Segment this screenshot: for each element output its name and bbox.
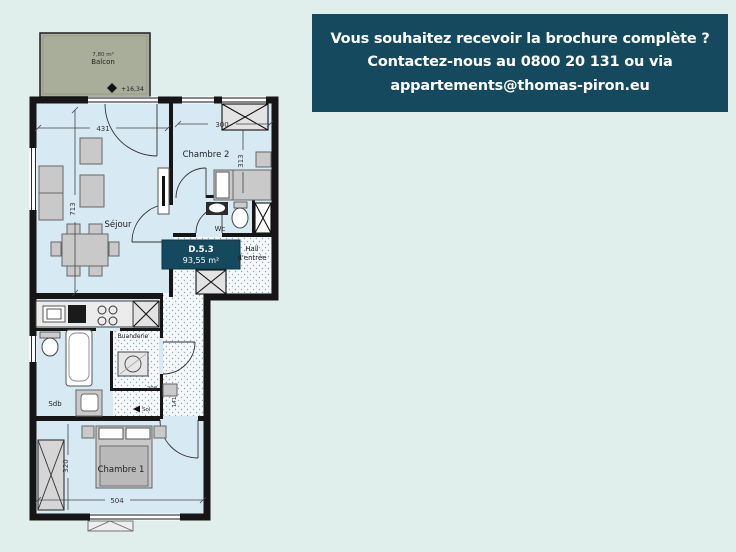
- kitchen: [36, 301, 133, 327]
- unit-code: D.5.3: [188, 245, 213, 255]
- dim-chambre2-width: 300: [215, 121, 228, 129]
- label-chambre2: Chambre 2: [183, 150, 230, 160]
- level-value: +16,34: [121, 86, 144, 93]
- dim-chambre2-height: 313: [237, 154, 245, 167]
- unit-area: 93,55 m²: [183, 256, 219, 265]
- dim-hall-width: 208: [147, 386, 158, 392]
- entry-note: Sol: [142, 407, 151, 413]
- dim-chambre1-height: 320: [62, 459, 70, 472]
- dim-entry-depth: 141: [172, 397, 178, 408]
- label-hall-2: d'entrée: [237, 254, 266, 262]
- label-wc: Wc: [215, 225, 226, 233]
- balcony-label: Balcon: [91, 58, 115, 66]
- unit-badge: D.5.3 93,55 m²: [162, 240, 240, 269]
- label-sejour: Séjour: [104, 219, 132, 230]
- dim-chambre1-width: 504: [110, 497, 124, 505]
- dim-sejour-width: 431: [96, 125, 109, 133]
- label-chambre1: Chambre 1: [98, 465, 145, 475]
- balcony: 7,80 m² Balcon +16,34: [40, 33, 150, 97]
- floor-plan: 7,80 m² Balcon +16,34: [0, 0, 736, 552]
- dim-sejour-height: 713: [69, 202, 77, 215]
- label-hall-1: Hall: [245, 245, 258, 253]
- label-sdb: Sdb: [48, 400, 62, 408]
- balcony-area-label: 7,80 m²: [92, 51, 114, 58]
- label-buanderie: Buanderie: [118, 333, 149, 340]
- page: { "banner": { "line1": "Vous souhaitez r…: [0, 0, 736, 552]
